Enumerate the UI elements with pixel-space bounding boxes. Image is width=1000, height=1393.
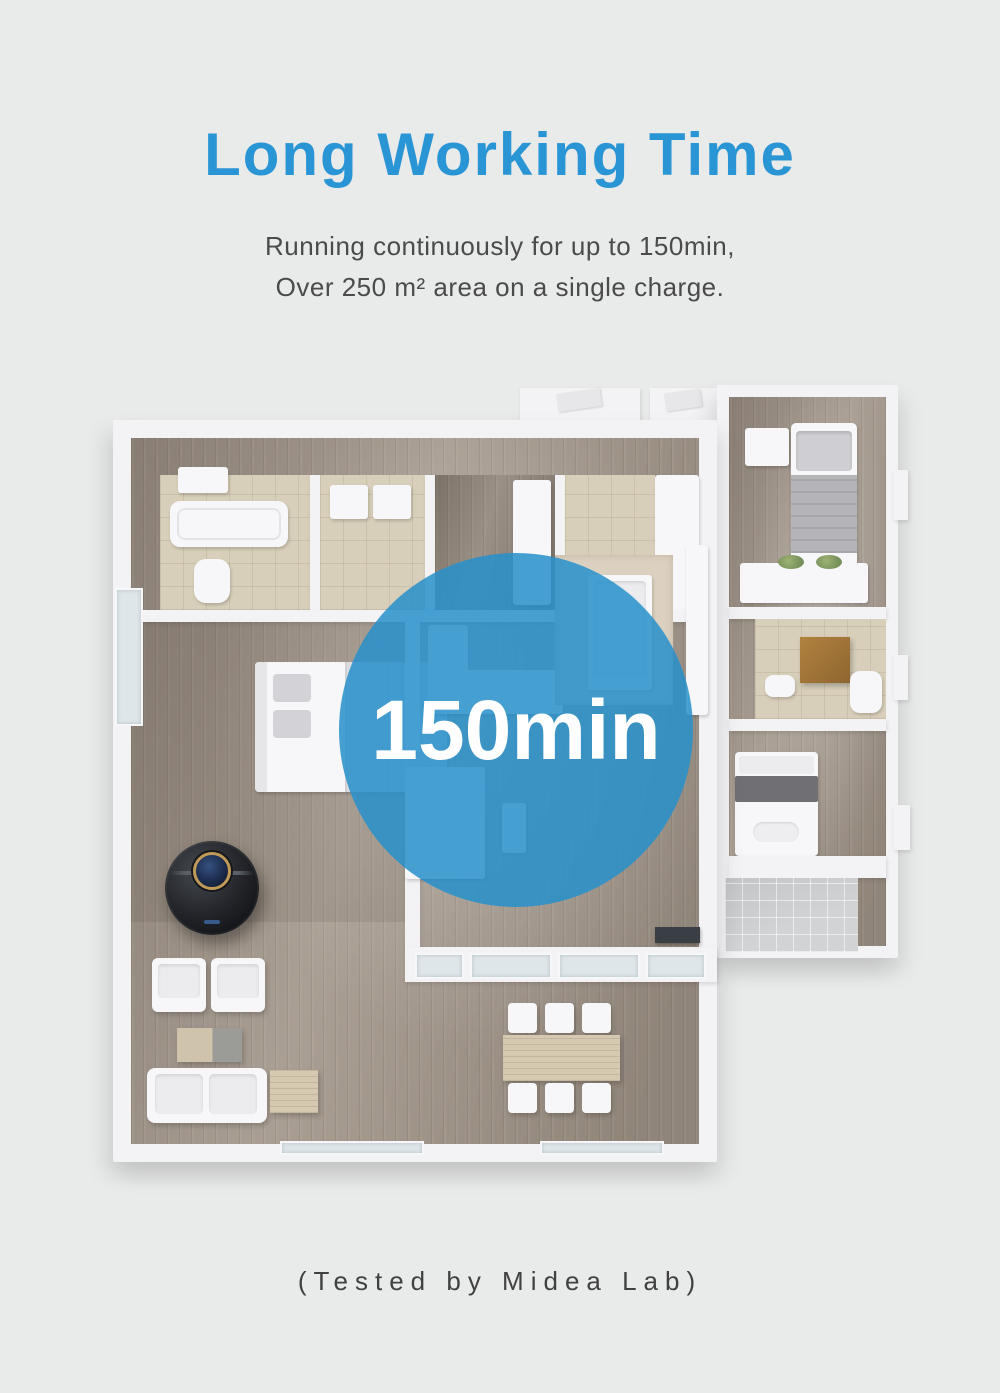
page-title: Long Working Time xyxy=(0,120,1000,189)
tv-cabinet xyxy=(686,545,708,715)
single-bed-pillows xyxy=(796,431,852,471)
bottom-window-2 xyxy=(540,1141,664,1155)
runtime-badge-circle: 150min xyxy=(339,553,693,907)
right-bath-sink xyxy=(765,675,795,697)
floor-books xyxy=(655,927,700,943)
double-bed-right xyxy=(735,752,818,856)
double-bed-left-pillow-2 xyxy=(273,710,311,738)
wall-cabinet-1 xyxy=(330,485,368,519)
window-glass-2 xyxy=(470,953,552,979)
robot-vacuum-camera-lens xyxy=(193,852,231,890)
window-glass-4 xyxy=(646,953,706,979)
toilet xyxy=(194,559,230,603)
runtime-badge-label: 150min xyxy=(371,682,661,779)
double-bed-left-pillow-1 xyxy=(273,674,311,702)
window-fin-1 xyxy=(894,470,908,520)
footer-note: (Tested by Midea Lab) xyxy=(0,1266,1000,1297)
side-table xyxy=(270,1070,318,1113)
dining-chair-6 xyxy=(582,1083,611,1113)
single-bed-blanket xyxy=(791,475,857,553)
page-background: { "theme": { "background": "#e9eaea", "a… xyxy=(0,0,1000,1393)
strip-wall-1 xyxy=(310,475,320,610)
dining-chair-1 xyxy=(508,1003,537,1033)
armchair-2 xyxy=(211,958,265,1012)
window-fin-2 xyxy=(894,655,908,700)
towel-shelf xyxy=(178,467,228,493)
wing-floor-band xyxy=(729,856,886,878)
sofa xyxy=(147,1068,267,1123)
plant-1 xyxy=(778,555,804,569)
armchair-1 xyxy=(152,958,206,1012)
wooden-box xyxy=(800,637,850,683)
plant-2 xyxy=(816,555,842,569)
wing-wall-1 xyxy=(729,607,886,619)
sofa-cushion-1 xyxy=(155,1074,203,1114)
dining-table xyxy=(503,1035,620,1081)
window-glass-1 xyxy=(415,953,464,979)
robot-vacuum xyxy=(165,841,259,935)
dresser xyxy=(740,563,868,603)
armchair-2-cushion xyxy=(217,964,259,998)
coffee-table xyxy=(177,1028,242,1062)
window-glass-3 xyxy=(558,953,640,979)
double-bed-right-cushion xyxy=(753,822,799,842)
wing-wall-2 xyxy=(729,719,886,731)
dining-chair-4 xyxy=(508,1083,537,1113)
double-bed-left-headboard xyxy=(255,662,267,792)
bedside-shelf xyxy=(745,428,789,466)
balcony-floor xyxy=(725,878,858,952)
sofa-cushion-2 xyxy=(209,1074,257,1114)
subtitle-line-1: Running continuously for up to 150min, xyxy=(0,226,1000,267)
subtitle-line-2: Over 250 m² area on a single charge. xyxy=(0,267,1000,308)
left-window xyxy=(115,588,143,726)
dining-chair-3 xyxy=(582,1003,611,1033)
double-bed-right-pillow xyxy=(739,756,814,774)
dining-chair-2 xyxy=(545,1003,574,1033)
double-bed-right-blanket xyxy=(735,776,818,802)
wall-cabinet-2 xyxy=(373,485,411,519)
bathtub xyxy=(170,501,288,547)
window-fin-3 xyxy=(894,805,910,850)
bottom-window-1 xyxy=(280,1141,424,1155)
bathtub-rim xyxy=(177,508,281,540)
floorplan-illustration: 150min xyxy=(110,375,902,1175)
dining-chair-5 xyxy=(545,1083,574,1113)
robot-vacuum-logo xyxy=(204,920,220,924)
right-bath-toilet xyxy=(850,671,882,713)
armchair-1-cushion xyxy=(158,964,200,998)
subtitle: Running continuously for up to 150min, O… xyxy=(0,226,1000,308)
